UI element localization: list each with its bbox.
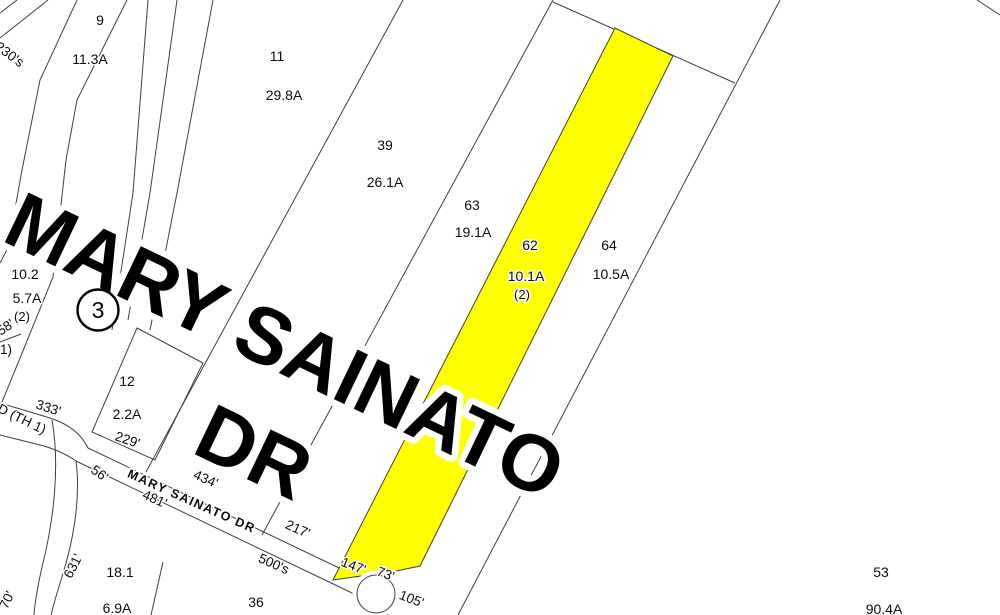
measurement-229ft: 229': [113, 429, 142, 451]
parcel-12-area: 2.2A: [113, 406, 142, 422]
parcel-map-canvas: MARY SAINATO DR 3 MARY SAINATO DR D (TH …: [0, 0, 1000, 615]
route-shield: 3: [78, 290, 119, 331]
parcel-36-number[interactable]: 36: [248, 594, 264, 610]
parcel-62-number[interactable]: 62: [522, 237, 538, 253]
parcel-10-2-units: (2): [14, 309, 30, 324]
boundary-line-18-36: [151, 562, 163, 615]
parcel-9-area: 11.3A: [72, 51, 108, 67]
old-road-south-edge: [0, 435, 76, 461]
measurement-217ft: 217': [283, 517, 312, 541]
parcel-12-boundary: [92, 328, 203, 460]
route-shield-number: 3: [92, 297, 105, 323]
parcel-64-area: 10.5A: [593, 266, 630, 282]
nw-road-edge: [0, 0, 48, 38]
parcel-39-area: 26.1A: [367, 174, 404, 190]
measurement-70ft: 70': [0, 589, 18, 611]
parcel-62-units: (2): [514, 287, 530, 302]
address-range-nw: 230's: [0, 39, 27, 70]
giant-street-name-line2: DR: [183, 387, 326, 517]
parcel-18-1-number[interactable]: 18.1: [106, 564, 133, 580]
parcel-11-number[interactable]: 11: [270, 48, 285, 64]
parcel-62-area: 10.1A: [508, 268, 545, 284]
parcel-39-number[interactable]: 39: [377, 137, 393, 153]
address-range-500s: 500's: [256, 551, 291, 578]
parcel-53-area: 90.4A: [866, 601, 903, 615]
parcel-64-number[interactable]: 64: [601, 237, 617, 253]
measurement-631ft: 631': [61, 551, 86, 580]
measurement-333ft: 333': [34, 397, 63, 419]
parcel-10-2-number[interactable]: 10.2: [11, 266, 38, 282]
parcel-10-2-area: 5.7A: [13, 290, 42, 306]
parcel-53-number[interactable]: 53: [873, 564, 889, 580]
parcel-18-1-area: 6.9A: [103, 600, 132, 615]
parcel-11-area: 29.8A: [266, 87, 303, 103]
measurement-105ft: 105': [397, 587, 426, 610]
nw-road-edge: [0, 0, 17, 13]
parcel-12-number[interactable]: 12: [119, 373, 135, 389]
ne-boundary-line: [977, 0, 1000, 15]
parcel-63-number[interactable]: 63: [464, 197, 480, 213]
parcel-9-number[interactable]: 9: [96, 12, 104, 28]
measurement-56ft: 56': [88, 462, 111, 484]
measurement-1: 1): [0, 342, 12, 357]
parcel-63-area: 19.1A: [455, 224, 492, 240]
parcel-map: MARY SAINATO DR 3 MARY SAINATO DR D (TH …: [0, 0, 1000, 615]
